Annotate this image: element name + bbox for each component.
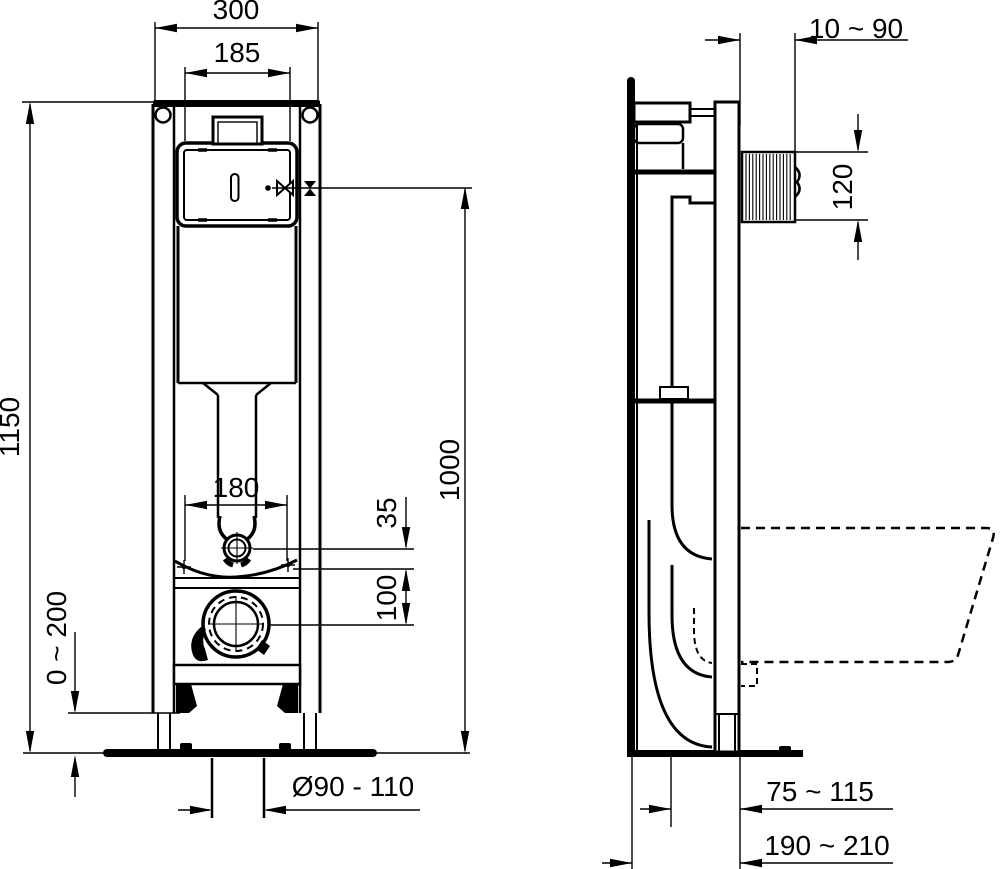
- arrow-icon: [71, 755, 79, 777]
- dim-drain-to-front-label: 75 ~ 115: [766, 776, 874, 807]
- arrow-icon: [461, 187, 469, 209]
- cistern-side-profile: [672, 197, 715, 559]
- drain-pipe-stub: [212, 758, 264, 818]
- dim-pan-bolt-spacing-label: 180: [213, 472, 260, 503]
- foot-lock-side: [779, 746, 791, 753]
- bowl-outlet-outline: [741, 664, 757, 686]
- dim-drain-to-wall: 190 ~ 210: [602, 757, 893, 869]
- arrow-icon: [268, 69, 290, 77]
- foot-bracket-left: [176, 684, 197, 713]
- arrow-icon: [402, 569, 410, 591]
- fill-valve-box: [213, 117, 262, 144]
- arrow-icon: [402, 527, 410, 549]
- arrow-icon: [740, 805, 762, 813]
- technical-drawing-sheet: 300 185 1150 1000 180: [0, 0, 1000, 869]
- arrow-icon: [264, 806, 286, 814]
- lower-crossbar: [174, 665, 300, 684]
- drain-bend-hidden: [694, 608, 712, 663]
- cistern-bracket-tab: [660, 387, 688, 399]
- bracket-connector: [690, 109, 715, 116]
- frame-top-bar: [153, 100, 320, 107]
- arrow-icon: [402, 603, 410, 625]
- bolt-mark-right-dot: [286, 563, 290, 567]
- arrow-icon: [155, 24, 177, 32]
- arrow-icon: [26, 102, 34, 124]
- bracket-step: [634, 124, 683, 143]
- dim-flush-line-height-label: 1000: [434, 439, 465, 501]
- wc-bowl-outline: [741, 528, 994, 662]
- mounting-hole-left: [156, 108, 171, 123]
- arrow-icon: [854, 220, 862, 242]
- mounting-hole-right: [303, 108, 318, 123]
- top-wall-bracket: [634, 103, 690, 122]
- leg-lock-left: [180, 743, 192, 750]
- dim-wall-offset-label: 10 ~ 90: [809, 13, 903, 44]
- bolt-mark-left-dot: [182, 565, 186, 569]
- valve-dot: [265, 185, 271, 191]
- dim-flush-bend-height: 120: [794, 114, 868, 260]
- dim-drain-to-wall-label: 190 ~ 210: [764, 830, 889, 861]
- frame-upright-side: [715, 102, 739, 752]
- dim-foot-adjustment-label: 0 ~ 200: [41, 591, 72, 685]
- drain-bend-outer: [649, 520, 712, 747]
- side-view: 10 ~ 90 120 75 ~ 115 190 ~ 210: [602, 13, 994, 869]
- drain-bend-inner: [672, 565, 712, 677]
- cistern-bottom: [178, 383, 296, 395]
- arrow-icon: [610, 859, 632, 867]
- mid-crossmember: [174, 578, 300, 588]
- dim-inlet-gap-label: 35: [371, 497, 402, 528]
- dim-flush-line-height: 1000: [272, 181, 472, 753]
- arrow-icon: [718, 36, 740, 44]
- arrow-icon: [265, 501, 287, 509]
- arrow-icon: [185, 501, 207, 509]
- arrow-icon: [296, 24, 318, 32]
- dim-flush-bend-height-label: 120: [827, 164, 858, 211]
- pan-fixing-strap: [175, 560, 297, 577]
- dim-cistern-width-label: 185: [214, 37, 261, 68]
- dim-drain-drop-label: 100: [371, 575, 402, 622]
- arrow-icon: [185, 69, 207, 77]
- arrow-icon: [190, 806, 212, 814]
- dim-drain-diameter: Ø90 - 110: [178, 771, 420, 814]
- arrow-icon: [854, 130, 862, 152]
- arrow-icon: [26, 731, 34, 753]
- dim-frame-height-label: 1150: [0, 397, 25, 457]
- dim-drain-diameter-label: Ø90 - 110: [292, 771, 414, 802]
- front-view: 300 185 1150 1000 180: [0, 0, 472, 818]
- wall-marker-icon: [304, 189, 316, 197]
- arrow-icon: [649, 805, 671, 813]
- installation-frame-drawing: 300 185 1150 1000 180: [0, 0, 1000, 869]
- arrow-icon: [71, 691, 79, 713]
- base-plate: [103, 749, 377, 757]
- dim-frame-height: 1150: [0, 102, 158, 753]
- dim-foot-adjustment: 0 ~ 200: [41, 591, 180, 797]
- arrow-icon: [461, 731, 469, 753]
- dim-frame-width-label: 300: [213, 0, 260, 25]
- cistern-body: [178, 226, 296, 383]
- dim-lines: [68, 632, 180, 797]
- arrow-icon: [740, 859, 762, 867]
- foot-bracket-right: [277, 684, 298, 713]
- leg-lock-right: [279, 743, 291, 750]
